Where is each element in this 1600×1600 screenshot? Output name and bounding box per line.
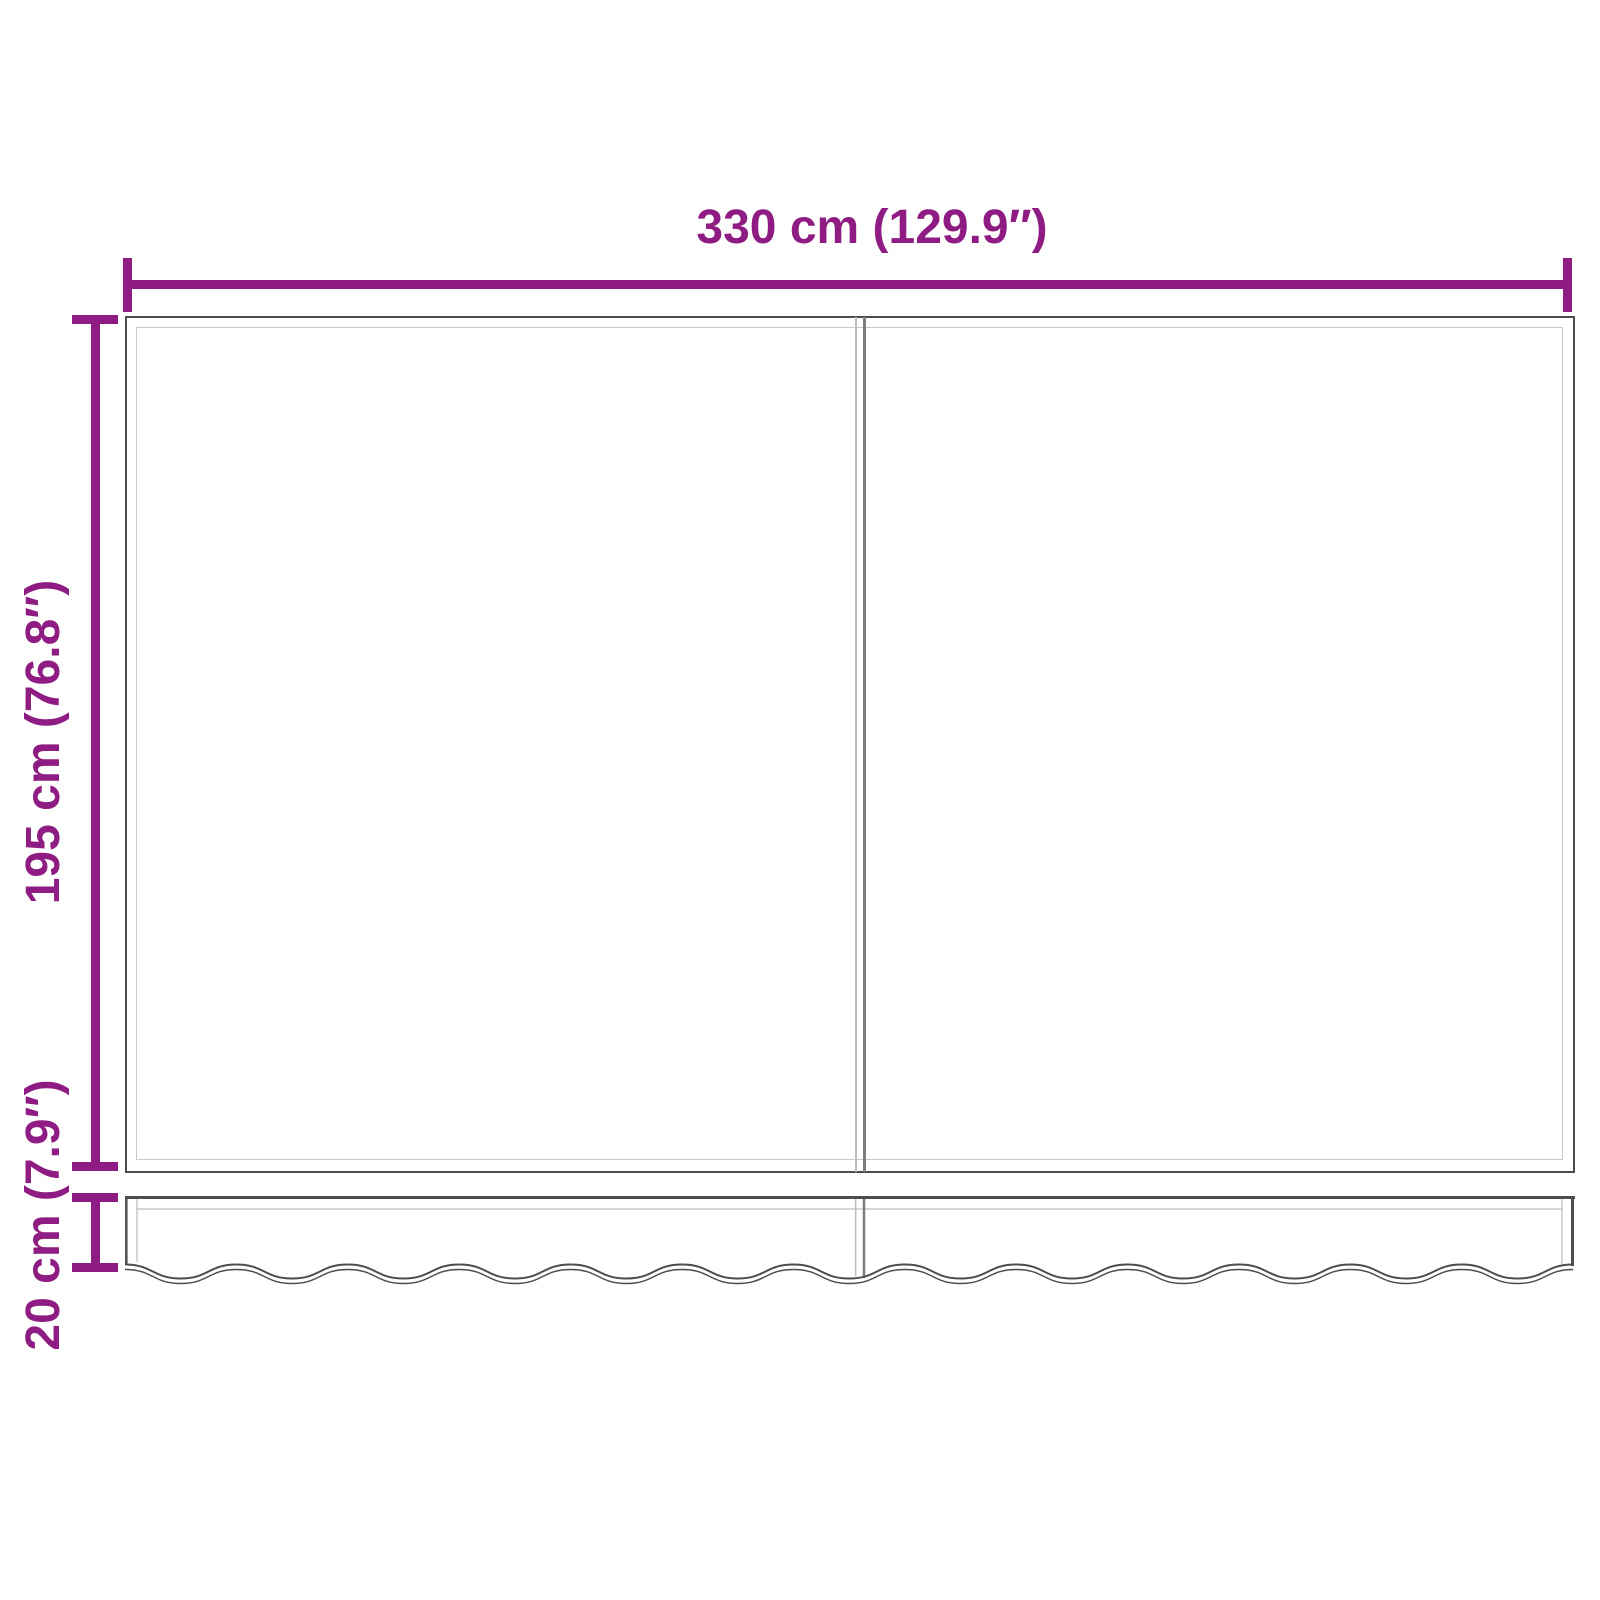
valance-strip — [118, 1188, 1582, 1300]
valance-dimension-top-cap — [72, 1193, 118, 1202]
height-dimension-label: 195 cm (76.8″) — [20, 580, 68, 905]
width-dimension-right-cap — [1563, 258, 1572, 312]
height-dimension-top-cap — [72, 315, 118, 324]
valance-dimension-bottom-cap — [72, 1263, 118, 1272]
height-dimension-bottom-cap — [72, 1162, 118, 1171]
valance-dimension-label: 20 cm (7.9″) — [20, 1079, 68, 1350]
diagram-canvas: 330 cm (129.9″) 195 cm (76.8″) 20 cm (7.… — [0, 0, 1600, 1600]
valance-wave-edge-outer — [125, 1265, 1573, 1279]
valance-wave-edge-inner — [125, 1270, 1573, 1284]
height-dimension-line — [91, 320, 100, 1167]
center-seam-dark-line — [863, 317, 866, 1172]
width-dimension-left-cap — [123, 258, 132, 312]
width-dimension-line — [127, 280, 1568, 289]
center-seam-light-line — [855, 317, 857, 1172]
fabric-hem-stitch-line — [136, 327, 1563, 1160]
valance-dimension-line — [91, 1198, 100, 1268]
width-dimension-label: 330 cm (129.9″) — [696, 204, 1047, 252]
